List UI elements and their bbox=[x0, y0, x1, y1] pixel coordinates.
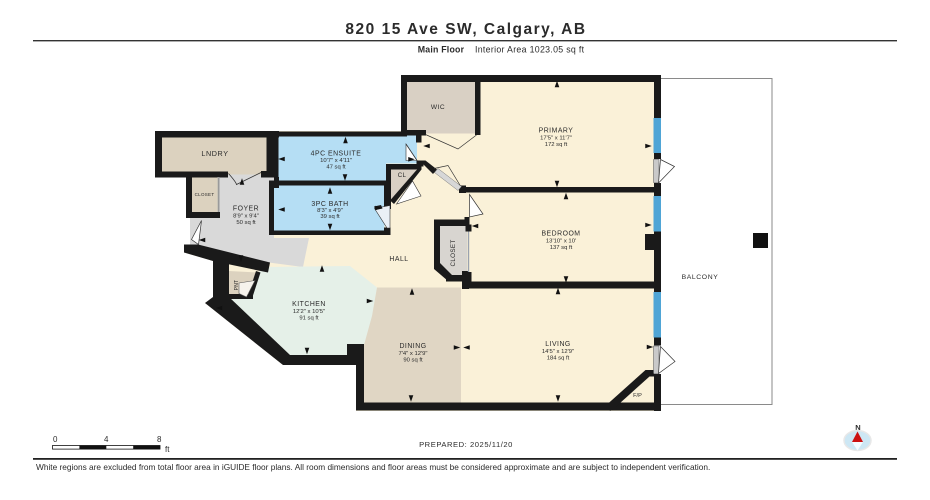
svg-text:172 sq ft: 172 sq ft bbox=[545, 142, 568, 148]
svg-text:CLOSET: CLOSET bbox=[450, 240, 457, 267]
svg-text:91 sq ft: 91 sq ft bbox=[299, 316, 319, 322]
svg-text:184 sq ft: 184 sq ft bbox=[547, 356, 570, 362]
svg-text:47 sq ft: 47 sq ft bbox=[326, 164, 346, 170]
svg-text:137 sq ft: 137 sq ft bbox=[550, 245, 573, 251]
svg-text:4PC ENSUITE: 4PC ENSUITE bbox=[311, 151, 362, 158]
svg-text:7'4" x 12'9": 7'4" x 12'9" bbox=[398, 351, 427, 357]
svg-text:39 sq ft: 39 sq ft bbox=[320, 214, 340, 220]
svg-text:White regions are excluded fro: White regions are excluded from total fl… bbox=[36, 462, 710, 472]
svg-text:PREPARED: 2025/11/20: PREPARED: 2025/11/20 bbox=[419, 440, 513, 449]
svg-text:HALL: HALL bbox=[389, 256, 408, 263]
svg-text:90 sq ft: 90 sq ft bbox=[403, 358, 423, 364]
svg-text:CLOSET: CLOSET bbox=[195, 192, 215, 197]
svg-text:BEDROOM: BEDROOM bbox=[541, 231, 580, 238]
svg-text:14'5" x 12'9": 14'5" x 12'9" bbox=[542, 349, 574, 355]
svg-text:50 sq ft: 50 sq ft bbox=[236, 220, 256, 226]
svg-text:LNDRY: LNDRY bbox=[201, 149, 228, 158]
svg-text:0: 0 bbox=[53, 435, 58, 444]
svg-text:PNT: PNT bbox=[234, 280, 240, 291]
svg-text:WIC: WIC bbox=[431, 104, 445, 111]
svg-text:17'5" x 11'7": 17'5" x 11'7" bbox=[540, 136, 572, 142]
svg-text:F/P: F/P bbox=[633, 393, 642, 399]
svg-text:PRIMARY: PRIMARY bbox=[539, 128, 574, 135]
svg-text:820 15 Ave SW, Calgary, AB: 820 15 Ave SW, Calgary, AB bbox=[345, 21, 586, 38]
svg-text:BALCONY: BALCONY bbox=[682, 274, 719, 281]
svg-text:Interior Area 1023.05 sq ft: Interior Area 1023.05 sq ft bbox=[475, 45, 585, 55]
svg-text:DINING: DINING bbox=[399, 343, 426, 350]
svg-text:LIVING: LIVING bbox=[545, 341, 571, 348]
svg-text:Main Floor: Main Floor bbox=[418, 45, 465, 55]
svg-text:ft: ft bbox=[165, 445, 170, 454]
svg-text:8'9" x 9'4": 8'9" x 9'4" bbox=[233, 214, 259, 220]
svg-text:8: 8 bbox=[157, 435, 162, 444]
svg-text:4: 4 bbox=[104, 435, 109, 444]
svg-text:10'7" x 4'11": 10'7" x 4'11" bbox=[320, 158, 352, 164]
svg-text:3PC BATH: 3PC BATH bbox=[311, 201, 348, 208]
svg-text:13'10" x 10': 13'10" x 10' bbox=[546, 239, 576, 245]
svg-text:KITCHEN: KITCHEN bbox=[292, 301, 326, 308]
svg-text:FOYER: FOYER bbox=[233, 206, 259, 213]
svg-text:CL: CL bbox=[398, 172, 407, 179]
svg-text:12'2" x 10'5": 12'2" x 10'5" bbox=[293, 309, 325, 315]
